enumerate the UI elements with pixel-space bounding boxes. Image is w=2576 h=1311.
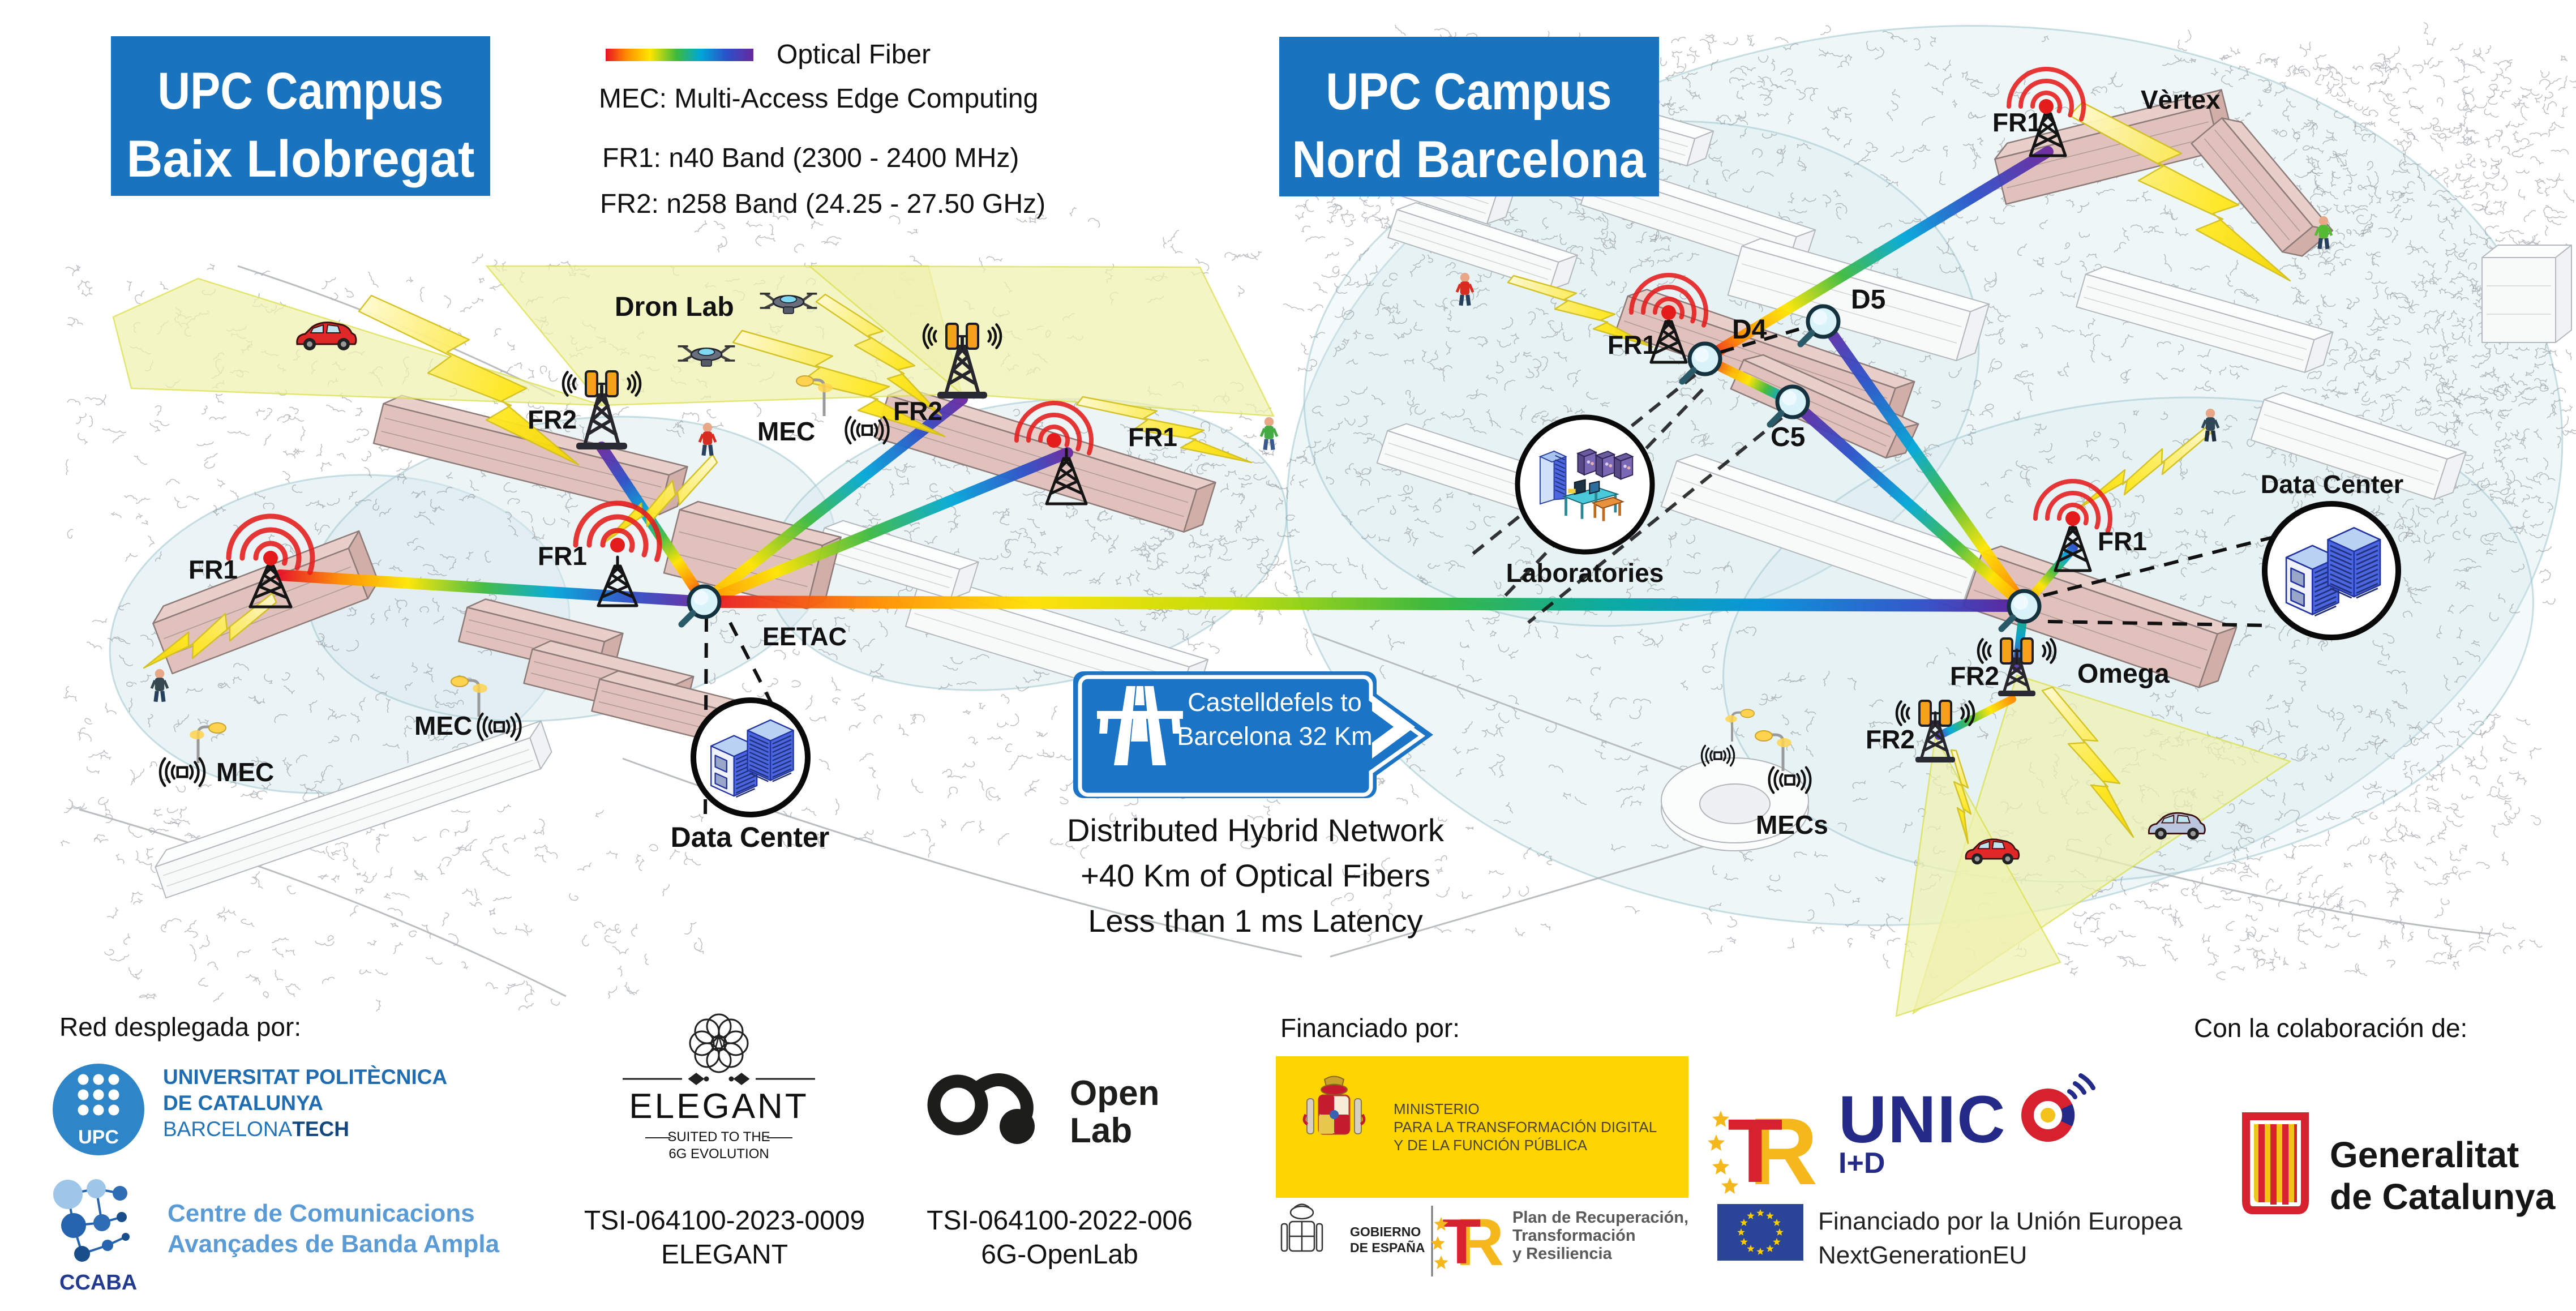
svg-text:FR1: FR1 [538, 541, 587, 571]
svg-text:CCABA: CCABA [59, 1271, 137, 1295]
svg-text:UPC: UPC [78, 1126, 119, 1148]
svg-text:Con la colaboración de:: Con la colaboración de: [2194, 1013, 2467, 1043]
svg-text:D5: D5 [1851, 285, 1885, 315]
svg-text:de Catalunya: de Catalunya [2330, 1176, 2556, 1217]
svg-text:DE CATALUNYA: DE CATALUNYA [163, 1091, 323, 1115]
svg-text:FR1: n40 Band (2300 - 2400 MHz: FR1: n40 Band (2300 - 2400 MHz) [602, 143, 1019, 173]
svg-text:MINISTERIO: MINISTERIO [1394, 1100, 1480, 1117]
svg-text:FR1: FR1 [188, 555, 238, 584]
svg-text:Plan de Recuperación,: Plan de Recuperación, [1512, 1209, 1688, 1227]
svg-text:Financiado por:: Financiado por: [1280, 1013, 1460, 1043]
svg-text:Dron Lab: Dron Lab [615, 292, 734, 322]
svg-text:MEC: MEC [757, 417, 815, 446]
svg-text:TSI-064100-2023-0009: TSI-064100-2023-0009 [584, 1206, 865, 1236]
svg-text:T: T [1442, 1206, 1481, 1277]
svg-text:FR1: FR1 [2098, 526, 2147, 556]
svg-text:MEC: Multi-Access Edge Computi: MEC: Multi-Access Edge Computing [599, 84, 1038, 114]
svg-text:Financiado por la Unión Europe: Financiado por la Unión Europea [1818, 1207, 2183, 1235]
svg-text:Avançades de Banda Ampla: Avançades de Banda Ampla [168, 1230, 500, 1258]
svg-text:FR2: FR2 [1866, 725, 1915, 754]
svg-text:Laboratories: Laboratories [1506, 558, 1664, 588]
svg-text:BARCELONATECH: BARCELONATECH [163, 1117, 349, 1141]
svg-text:Centre de Comunicacions: Centre de Comunicacions [168, 1199, 475, 1227]
svg-text:Red desplegada por:: Red desplegada por: [59, 1012, 301, 1042]
svg-text:y Resiliencia: y Resiliencia [1512, 1245, 1613, 1263]
svg-text:Transformación: Transformación [1512, 1227, 1636, 1245]
svg-text:C5: C5 [1771, 422, 1805, 452]
svg-text:MEC: MEC [414, 711, 472, 740]
svg-text:DE ESPAÑA: DE ESPAÑA [1350, 1240, 1425, 1255]
svg-text:Data Center: Data Center [2261, 470, 2404, 499]
svg-text:UNIC: UNIC [1838, 1082, 2006, 1157]
svg-text:D4: D4 [1732, 315, 1767, 345]
svg-text:Open: Open [1070, 1074, 1159, 1113]
svg-text:6G-OpenLab: 6G-OpenLab [981, 1240, 1138, 1270]
svg-text:Distributed Hybrid Network: Distributed Hybrid Network [1067, 812, 1445, 848]
svg-text:MEC: MEC [216, 757, 274, 787]
svg-text:I+D: I+D [1838, 1147, 1885, 1180]
svg-text:Generalitat: Generalitat [2330, 1134, 2519, 1175]
svg-text:SUITED TO THE: SUITED TO THE [667, 1129, 770, 1145]
svg-text:FR1: FR1 [1992, 108, 2042, 137]
svg-text:UPC Campus: UPC Campus [158, 62, 444, 120]
svg-text:Baix Llobregat: Baix Llobregat [127, 130, 475, 188]
svg-text:TSI-064100-2022-006: TSI-064100-2022-006 [927, 1206, 1193, 1236]
svg-text:Data Center: Data Center [671, 821, 830, 853]
svg-text:FR2: FR2 [1950, 661, 1999, 691]
svg-text:FR2: FR2 [528, 405, 577, 434]
svg-text:T: T [1728, 1100, 1783, 1201]
svg-text:+40 Km of Optical Fibers: +40 Km of Optical Fibers [1081, 858, 1430, 893]
svg-text:NextGenerationEU: NextGenerationEU [1818, 1241, 2027, 1269]
svg-text:Vèrtex: Vèrtex [2141, 85, 2221, 114]
svg-text:Nord Barcelona: Nord Barcelona [1292, 131, 1647, 188]
svg-text:FR1: FR1 [1608, 330, 1657, 359]
svg-text:GOBIERNO: GOBIERNO [1350, 1224, 1421, 1239]
svg-text:Optical Fiber: Optical Fiber [777, 40, 931, 70]
svg-text:Y DE LA FUNCIÓN PÚBLICA: Y DE LA FUNCIÓN PÚBLICA [1394, 1137, 1588, 1154]
svg-text:FR2: FR2 [893, 396, 942, 426]
svg-text:ELEGANT: ELEGANT [661, 1240, 788, 1270]
svg-text:UPC Campus: UPC Campus [1326, 63, 1612, 121]
svg-text:FR2: n258 Band (24.25 - 27.50: FR2: n258 Band (24.25 - 27.50 GHz) [600, 189, 1045, 219]
svg-text:UNIVERSITAT POLITÈCNICA: UNIVERSITAT POLITÈCNICA [163, 1065, 447, 1089]
svg-text:Barcelona 32 Km: Barcelona 32 Km [1177, 722, 1372, 751]
svg-text:Less than 1 ms Latency: Less than 1 ms Latency [1088, 903, 1422, 939]
svg-text:Omega: Omega [2077, 659, 2170, 689]
svg-text:Lab: Lab [1070, 1111, 1132, 1150]
svg-text:Castelldefels to: Castelldefels to [1188, 688, 1362, 717]
svg-text:6G EVOLUTION: 6G EVOLUTION [668, 1146, 769, 1162]
svg-text:FR1: FR1 [1128, 422, 1177, 452]
svg-text:EETAC: EETAC [762, 622, 847, 651]
svg-text:ELEGANT: ELEGANT [629, 1087, 808, 1126]
svg-text:MECs: MECs [1756, 810, 1828, 839]
svg-text:PARA LA TRANSFORMACIÓN DIGITAL: PARA LA TRANSFORMACIÓN DIGITAL [1394, 1119, 1657, 1136]
